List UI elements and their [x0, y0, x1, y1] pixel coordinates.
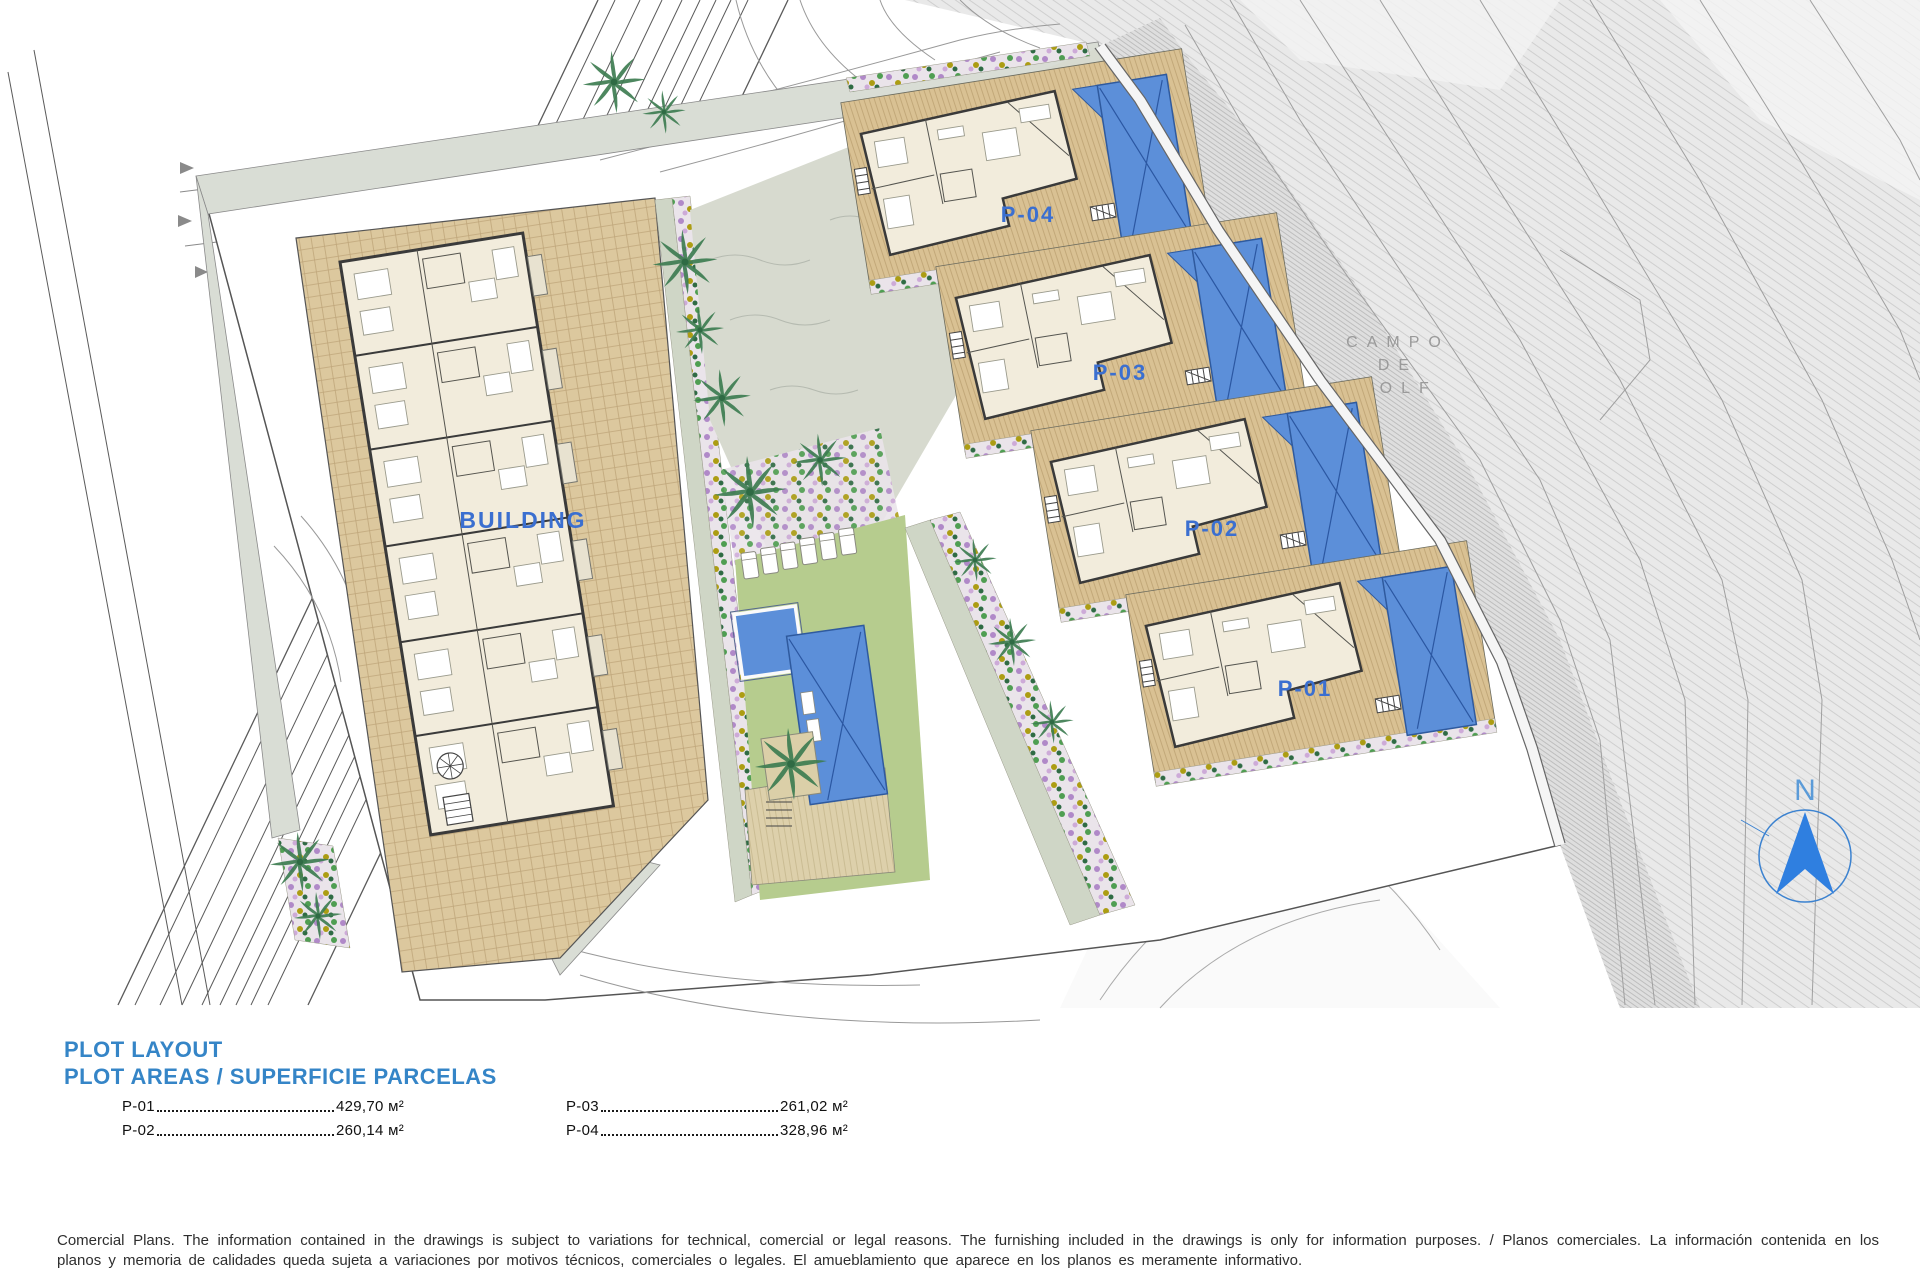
legend-row-p04: P-04 328,96 м²	[566, 1122, 848, 1139]
plot-label-p03: P-03	[1093, 360, 1147, 385]
legend-label: P-03	[566, 1098, 599, 1115]
plot-label-p02: P-02	[1185, 516, 1239, 541]
legend-label: P-01	[122, 1098, 155, 1115]
dotted-leader	[601, 1124, 778, 1136]
svg-text:CAMPO: CAMPO	[1346, 334, 1450, 351]
dotted-leader	[157, 1100, 334, 1112]
north-label: N	[1794, 774, 1816, 807]
site-plan-page: CAMPO DE GOLF	[0, 0, 1920, 1280]
legend-value: 260,14 м²	[336, 1122, 404, 1139]
plot-label-p04: P-04	[1001, 202, 1055, 227]
page-subtitle: PLOT AREAS / SUPERFICIE PARCELAS	[64, 1063, 497, 1090]
site-plan-drawing: CAMPO DE GOLF	[0, 0, 1920, 1040]
svg-text:DE: DE	[1378, 357, 1418, 374]
plot-label-p01: P-01	[1278, 676, 1332, 701]
legend-row-p02: P-02 260,14 м²	[122, 1122, 404, 1139]
building-label: BUILDING	[459, 507, 586, 533]
legend-label: P-02	[122, 1122, 155, 1139]
legend-row-p01: P-01 429,70 м²	[122, 1098, 404, 1115]
page-title: PLOT LAYOUT	[64, 1036, 497, 1063]
legend-titles: PLOT LAYOUT PLOT AREAS / SUPERFICIE PARC…	[64, 1036, 497, 1090]
legend-value: 429,70 м²	[336, 1098, 404, 1115]
legend-row-p03: P-03 261,02 м²	[566, 1098, 848, 1115]
disclaimer-text: Comercial Plans. The information contain…	[57, 1231, 1879, 1271]
legend-value: 328,96 м²	[780, 1122, 848, 1139]
palm-tree	[583, 51, 645, 113]
dotted-leader	[157, 1124, 334, 1136]
dotted-leader	[601, 1100, 778, 1112]
legend-value: 261,02 м²	[780, 1098, 848, 1115]
legend-label: P-04	[566, 1122, 599, 1139]
